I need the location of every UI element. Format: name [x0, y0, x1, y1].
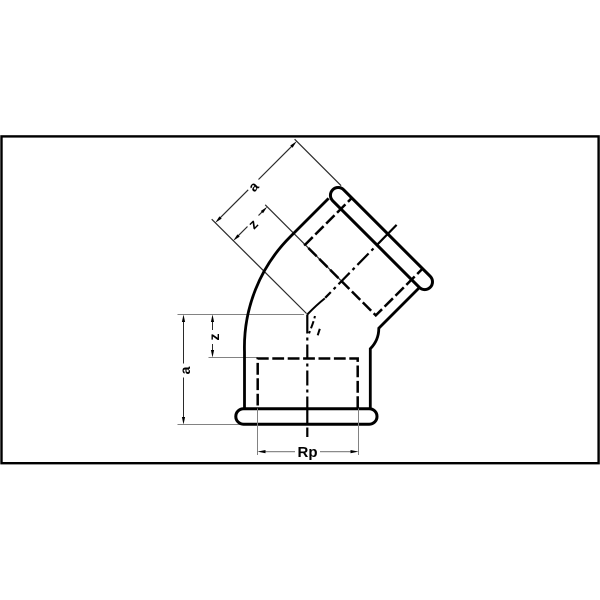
svg-text:z: z	[206, 334, 222, 341]
svg-text:Rp: Rp	[298, 444, 318, 461]
svg-text:a: a	[177, 366, 193, 374]
